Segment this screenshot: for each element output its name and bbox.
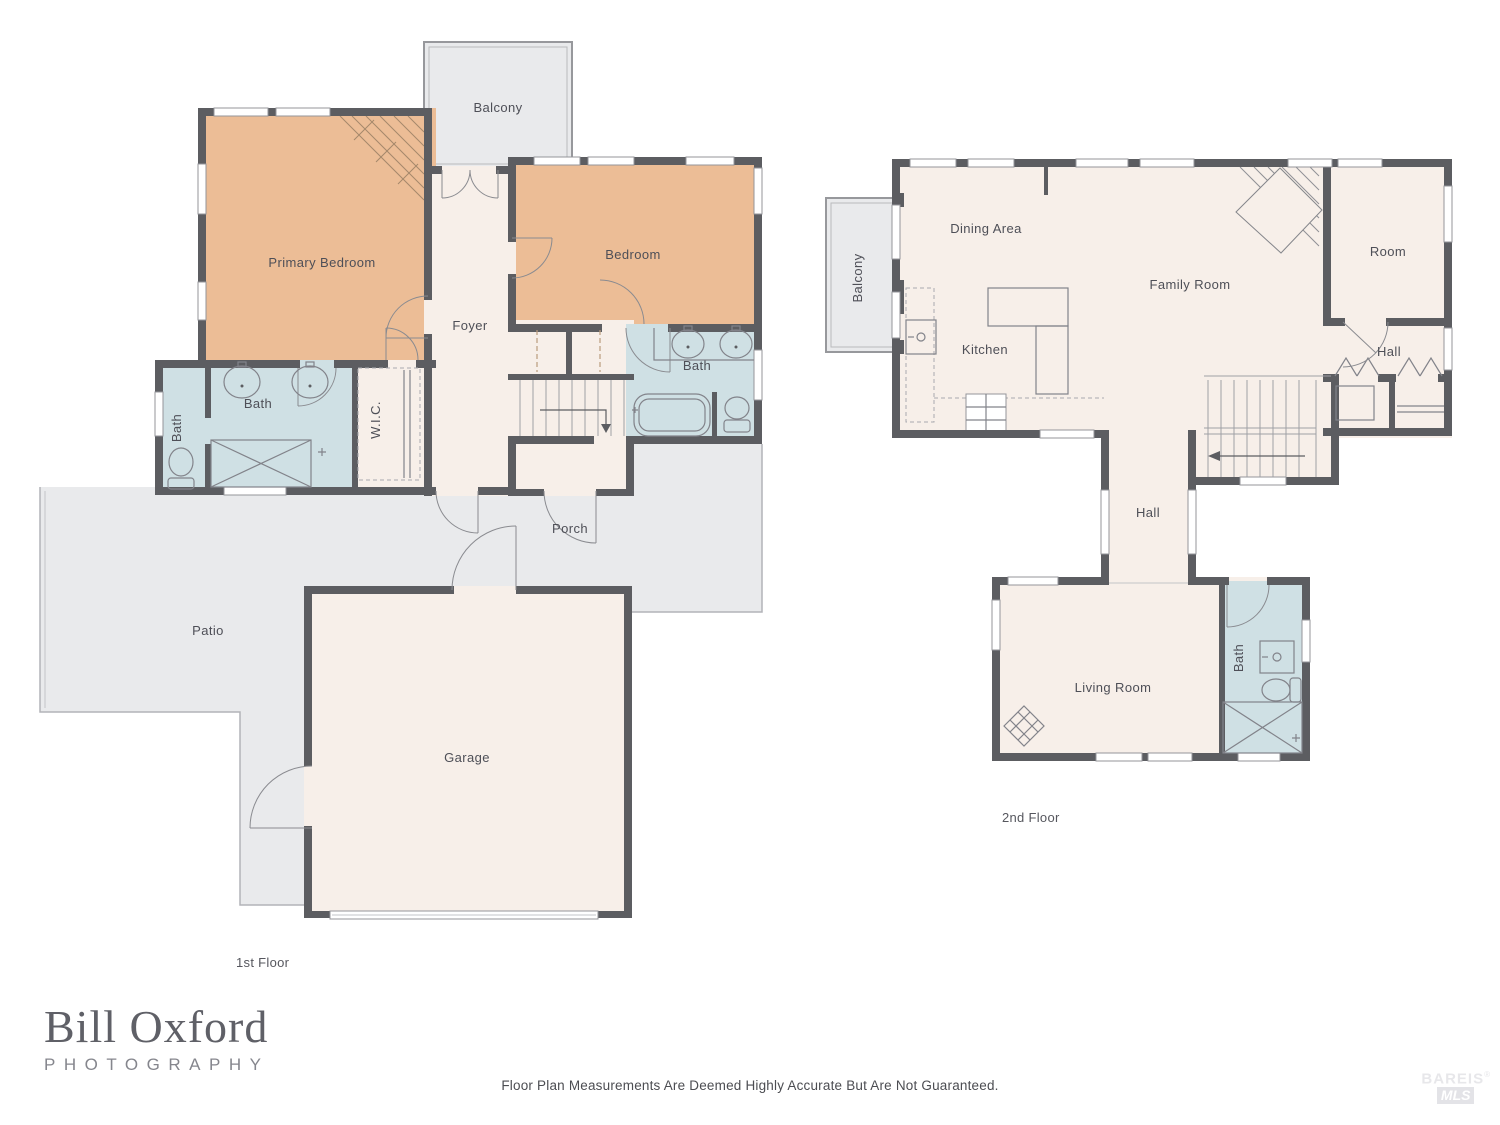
room-label-primary-bedroom: Primary Bedroom	[268, 255, 375, 270]
room-label-wic: W.I.C.	[368, 401, 383, 439]
floor-plan-canvas: Balcony Primary Bedroom Foyer Bedroom Ba…	[0, 0, 1500, 1125]
window-icon	[198, 282, 206, 320]
balcony-door-icon	[892, 292, 900, 338]
watermark-name: BAREIS	[1421, 1070, 1484, 1087]
room-label-hall: Hall	[1136, 505, 1160, 520]
floor-label-2nd: 2nd Floor	[1002, 810, 1060, 825]
room-label-hall-upper: Hall	[1377, 344, 1401, 359]
window-icon	[754, 350, 762, 400]
window-icon	[198, 164, 206, 214]
room-label-family-room: Family Room	[1150, 277, 1231, 292]
second-floor-plan: Balcony Dining Area Kitchen Family Room …	[826, 159, 1452, 825]
window-icon	[892, 205, 900, 259]
logo-subtitle: PHOTOGRAPHY	[44, 1055, 269, 1075]
room-label-bath-main: Bath	[244, 396, 272, 411]
room-label-room: Room	[1370, 244, 1406, 259]
room-label-foyer: Foyer	[452, 318, 488, 333]
window-icon	[1140, 159, 1194, 167]
room-label-patio: Patio	[192, 623, 224, 638]
window-icon	[276, 108, 330, 116]
window-icon	[1101, 490, 1109, 554]
room-bath-ensuite	[626, 324, 762, 444]
mls-watermark: BAREIS® MLS	[1421, 1066, 1490, 1104]
disclaimer-text: Floor Plan Measurements Are Deemed Highl…	[0, 1078, 1500, 1093]
room-label-balcony-2f: Balcony	[850, 253, 865, 302]
window-icon	[1444, 186, 1452, 242]
room-bedroom	[508, 157, 762, 332]
window-icon	[1188, 490, 1196, 554]
room-label-porch: Porch	[552, 521, 588, 536]
room-label-dining-area: Dining Area	[950, 221, 1022, 236]
window-icon	[214, 108, 268, 116]
window-icon	[155, 392, 163, 436]
window-icon	[1240, 477, 1286, 485]
window-icon	[534, 157, 580, 165]
window-icon	[1444, 328, 1452, 370]
room-primary-bedroom	[198, 108, 436, 372]
window-icon	[686, 157, 734, 165]
window-icon	[754, 168, 762, 214]
window-icon	[1148, 753, 1192, 761]
window-icon	[910, 159, 956, 167]
watermark-registered-icon: ®	[1484, 1070, 1490, 1079]
first-floor-plan: Balcony Primary Bedroom Foyer Bedroom Ba…	[40, 42, 762, 970]
tub-divider-wall	[712, 392, 717, 436]
window-icon	[1040, 430, 1094, 438]
photographer-logo: Bill Oxford PHOTOGRAPHY	[44, 1005, 269, 1075]
window-icon	[1096, 753, 1142, 761]
floor-label-1st: 1st Floor	[236, 955, 290, 970]
window-icon	[1302, 620, 1310, 662]
room-label-balcony-1f: Balcony	[473, 100, 522, 115]
window-icon	[1238, 753, 1280, 761]
window-icon	[992, 600, 1000, 650]
room-label-bath-small: Bath	[169, 414, 184, 442]
window-icon	[224, 487, 286, 495]
window-icon	[1076, 159, 1128, 167]
watermark-sub: MLS	[1437, 1087, 1475, 1104]
stove-icon	[966, 394, 1006, 432]
logo-name: Bill Oxford	[44, 1005, 269, 1049]
room-label-kitchen: Kitchen	[962, 342, 1008, 357]
room-label-bath-ensuite: Bath	[683, 358, 711, 373]
room-label-bedroom: Bedroom	[605, 247, 661, 262]
window-icon	[968, 159, 1014, 167]
room-label-bath-2f: Bath	[1231, 644, 1246, 672]
window-icon	[1008, 577, 1058, 585]
room-label-garage: Garage	[444, 750, 490, 765]
floor-plan-page: Balcony Primary Bedroom Foyer Bedroom Ba…	[0, 0, 1500, 1125]
window-icon	[1338, 159, 1382, 167]
room-label-living-room: Living Room	[1075, 680, 1152, 695]
window-icon	[588, 157, 634, 165]
window-icon	[1288, 159, 1332, 167]
